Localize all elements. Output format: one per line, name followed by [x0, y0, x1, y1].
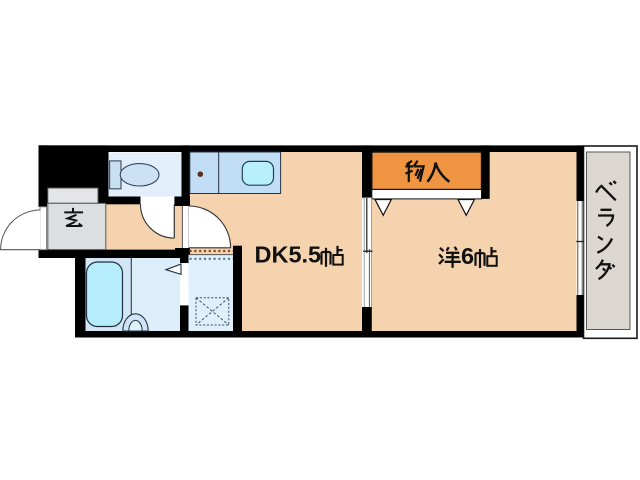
svg-text:6: 6	[461, 243, 474, 269]
svg-text:DK5.5: DK5.5	[255, 241, 322, 267]
